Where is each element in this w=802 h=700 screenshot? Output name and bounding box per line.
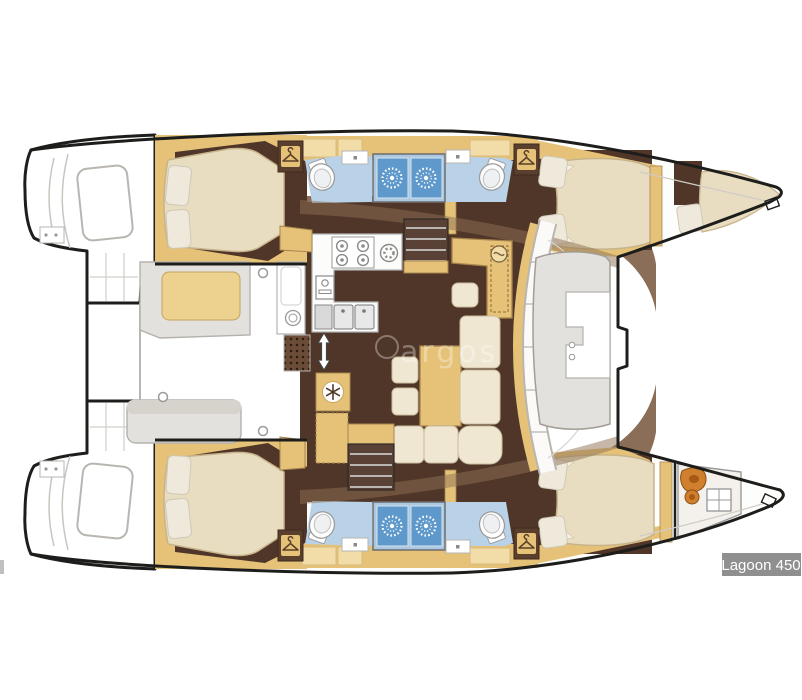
deck-ring xyxy=(259,269,268,278)
sink-drain-icon xyxy=(456,155,460,159)
pillow xyxy=(165,165,192,206)
faucet-icon xyxy=(341,309,345,313)
sofa-corner-cushion xyxy=(458,426,502,464)
edge-artifact xyxy=(0,560,4,574)
cockpit-cabinet xyxy=(277,262,305,334)
bulkhead xyxy=(650,166,662,246)
galley-cabinet xyxy=(316,413,348,463)
sink-drain-icon xyxy=(354,156,358,160)
washer-icon xyxy=(286,311,301,326)
catamaran-floorplan-svg: argos Lagoon 450 xyxy=(0,0,802,700)
starboard-transom xyxy=(25,135,155,303)
starboard-stairs xyxy=(404,219,448,273)
cockpit-mat xyxy=(284,335,310,371)
model-badge: Lagoon 450 xyxy=(721,553,801,576)
wardrobe-locker xyxy=(514,144,539,175)
crew-sink-unit xyxy=(707,489,731,511)
wardrobe-locker xyxy=(514,528,539,559)
cabinet xyxy=(302,139,336,157)
nav-instrument-icon xyxy=(491,246,507,262)
floorplan: argos Lagoon 450 xyxy=(0,0,802,700)
faucet-icon xyxy=(362,309,366,313)
deck-drain xyxy=(569,354,575,360)
sofa-cushion xyxy=(392,426,424,463)
transom-bracket xyxy=(40,227,64,243)
cockpit-bench-port xyxy=(127,400,241,443)
cabinet xyxy=(470,140,510,156)
sofa-cushion xyxy=(424,426,458,463)
bench-back xyxy=(127,400,241,414)
sink-drain-icon xyxy=(354,543,358,547)
pillow xyxy=(166,209,192,249)
crew-seat-center xyxy=(689,475,699,483)
deck-drain xyxy=(569,342,575,348)
sink-drain-icon xyxy=(456,545,460,549)
port-stairs xyxy=(348,424,394,490)
nav-seat xyxy=(452,283,478,307)
cabinet xyxy=(302,547,336,565)
port-bathrooms xyxy=(278,501,539,568)
cockpit-locker xyxy=(280,437,305,470)
deck-ring xyxy=(159,393,168,402)
badge-label: Lagoon 450 xyxy=(721,557,800,574)
pillow xyxy=(538,155,568,188)
pillow xyxy=(165,498,192,539)
deck-ring xyxy=(259,427,268,436)
forward-cockpit xyxy=(533,240,610,458)
oven-icon xyxy=(316,276,334,299)
wardrobe-locker xyxy=(278,530,303,561)
cockpit-bench-stbd xyxy=(140,262,250,338)
starboard-bathrooms xyxy=(278,136,539,203)
wardrobe-locker xyxy=(278,141,303,172)
watermark-text: argos xyxy=(400,335,498,370)
seat-cushion xyxy=(392,388,418,415)
double-sink xyxy=(315,305,374,329)
starboard-forepeak xyxy=(640,161,779,246)
bench-seat xyxy=(162,272,240,320)
pillow xyxy=(166,455,192,495)
transom-bracket xyxy=(40,461,64,477)
fridge xyxy=(316,373,350,411)
pillow xyxy=(538,515,568,548)
cockpit-locker xyxy=(280,226,312,252)
cabinet xyxy=(470,548,510,564)
snowflake-icon xyxy=(323,382,344,403)
sofa-cushion xyxy=(460,370,500,424)
